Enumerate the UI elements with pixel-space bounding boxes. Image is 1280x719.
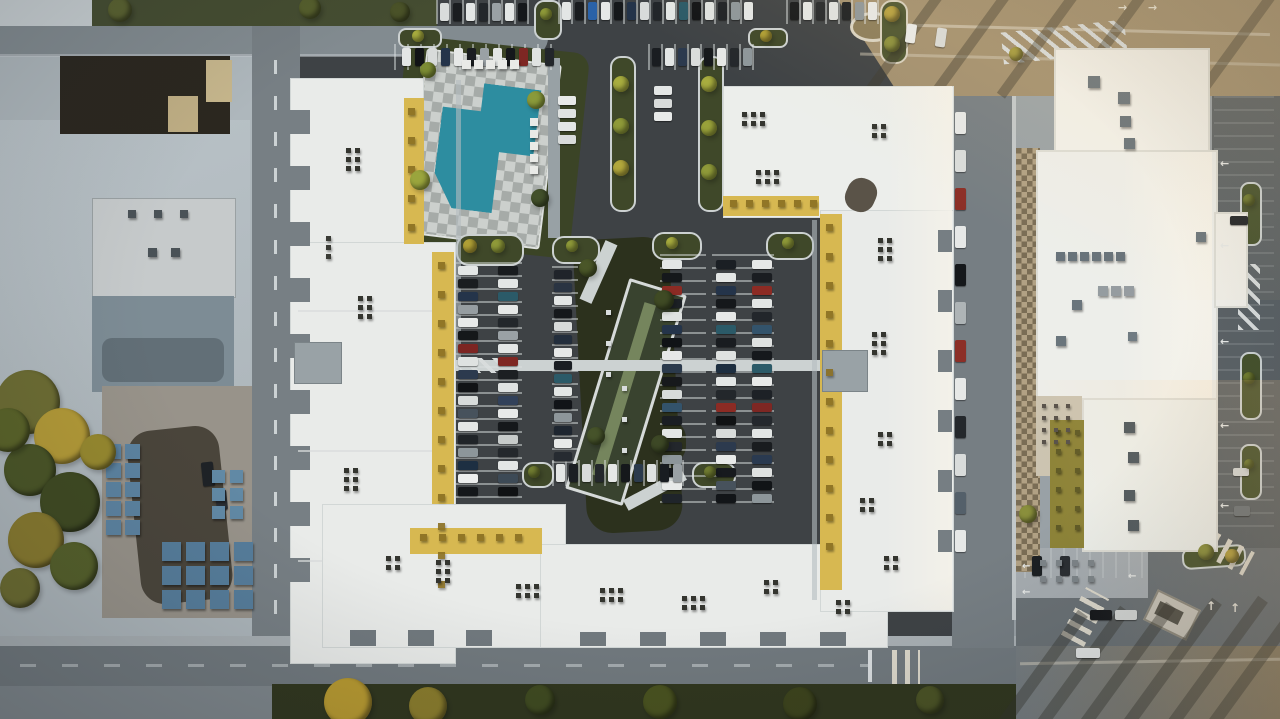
roof-vents-south-1	[436, 578, 441, 583]
parked-car	[1032, 556, 1042, 576]
blue-tarps-2	[234, 542, 253, 561]
balcony-windows-east	[826, 398, 833, 405]
second-row-l-car	[678, 48, 687, 66]
gray-building-upper-roof	[92, 198, 236, 298]
hvac-main-unit-long	[1124, 286, 1134, 296]
balcony-windows-east	[826, 253, 833, 260]
courtyard-col-f-car	[752, 416, 772, 425]
roof-vents-south-3	[600, 597, 605, 602]
blue-tarps-1	[125, 501, 140, 516]
roof-vents-south-1	[436, 569, 441, 574]
courtyard-col-a-car	[458, 435, 478, 444]
roof-vents-south-3	[600, 588, 605, 593]
tree	[390, 2, 410, 22]
bottom-row-m-car	[595, 464, 604, 482]
east-street-parallel-car	[955, 150, 966, 172]
hvac-main-c	[1196, 232, 1206, 242]
tree	[463, 239, 477, 253]
tree	[491, 239, 505, 253]
roof-vents-west-2	[367, 314, 372, 319]
tree	[1019, 505, 1037, 523]
courtyard-col-b-car	[498, 487, 518, 496]
courtyard-col-a-car	[458, 448, 478, 457]
bottom-row-m-car	[569, 464, 578, 482]
balcony-windows-west-main	[438, 494, 445, 501]
second-row-l-car	[652, 48, 661, 66]
roof-vents-west-2	[367, 296, 372, 301]
gravel-court-clutter	[1054, 416, 1058, 420]
tree	[409, 687, 447, 719]
top-row-i-car	[627, 2, 636, 20]
east-street-parallel-car	[955, 264, 966, 286]
top-row-i-car	[731, 2, 740, 20]
bottom-row-m-car	[582, 464, 591, 482]
blue-tarps-1	[125, 482, 140, 497]
roof-vents-east-6	[884, 556, 889, 561]
roof-vents-east-2	[878, 256, 883, 261]
east-street-parallel-car	[955, 530, 966, 552]
courtyard-col-c-car	[554, 335, 572, 344]
bottom-row-m-car	[660, 464, 669, 482]
balcony-windows-west-main	[438, 465, 445, 472]
olive-roof-vents	[1056, 468, 1061, 473]
bottom-row-m-car	[621, 464, 630, 482]
tree	[613, 160, 629, 176]
hvac-se-3	[1124, 490, 1135, 501]
roof-vents-south-4	[691, 596, 696, 601]
courtyard-col-d-car	[662, 377, 682, 386]
roof-vents-east-1	[881, 133, 886, 138]
hvac-main-d	[1128, 332, 1137, 341]
roof-vents-west-4	[395, 556, 400, 561]
south-wing-tooth-3	[466, 630, 492, 646]
second-row-k-car	[441, 48, 450, 66]
courtyard-col-b-car	[498, 409, 518, 418]
roof-vents-south-4	[691, 605, 696, 610]
lawn-skylights-2	[622, 448, 627, 453]
courtyard-col-f-car	[752, 481, 772, 490]
tree	[80, 434, 116, 470]
courtyard-col-a-car	[458, 357, 478, 366]
east-wing-tooth-2	[938, 290, 952, 312]
roof-vents-south-2	[516, 593, 521, 598]
courtyard-col-b-car	[498, 370, 518, 379]
roof-vents-west-1	[346, 157, 351, 162]
road-arrow: ←	[1220, 158, 1229, 169]
gray-roof-vents-1	[180, 210, 188, 218]
balcony-windows-east	[826, 514, 833, 521]
gray-roof-vents-1	[128, 210, 136, 218]
roof-vents-ne-2	[774, 179, 779, 184]
pool-loungers-north	[474, 60, 483, 69]
courtyard-col-d-car	[662, 338, 682, 347]
top-row-i-car	[653, 2, 662, 20]
roof-vents-ne-2	[774, 170, 779, 175]
industrial-tan-wall-2	[168, 96, 198, 132]
parked-car	[1090, 610, 1112, 620]
courtyard-col-c-car	[554, 296, 572, 305]
east-wing-tooth-1	[938, 230, 952, 252]
west-wing-tooth-1	[290, 110, 310, 134]
balcony-windows-west-main	[438, 436, 445, 443]
top-row-i-car	[575, 2, 584, 20]
hvac-top-1	[1088, 76, 1100, 88]
pool-loungers-east	[530, 154, 538, 162]
balcony-windows-west-main	[438, 407, 445, 414]
top-row-h-car	[518, 3, 527, 21]
road-arrow: ↑	[1230, 602, 1240, 614]
plaza-clutter	[1072, 576, 1078, 582]
courtyard-col-e-car	[716, 429, 736, 438]
courtyard-col-d-car	[662, 481, 682, 490]
roof-vents-east-5	[869, 507, 874, 512]
roof-vents-west-1	[346, 166, 351, 171]
roof-vents-west-2	[358, 305, 363, 310]
second-row-l-car	[743, 48, 752, 66]
tree	[613, 118, 629, 134]
courtyard-col-c-car	[554, 322, 572, 331]
top-row-h-car	[453, 3, 462, 21]
pool-east-col-car	[558, 109, 576, 118]
top-row-h-car	[479, 3, 488, 21]
balcony-windows-west-north	[408, 137, 415, 144]
tree	[1009, 47, 1023, 61]
tree	[528, 466, 540, 478]
courtyard-col-d-car	[662, 325, 682, 334]
roof-vents-east-6	[893, 556, 898, 561]
courtyard-col-a-car	[458, 383, 478, 392]
top-row-i-car	[640, 2, 649, 20]
lawn-skylights-1	[606, 372, 611, 377]
pool-side-walkway	[548, 58, 560, 238]
tree	[701, 164, 717, 180]
roof-vents-east-4	[887, 432, 892, 437]
courtyard-col-c-car	[554, 374, 572, 383]
tree	[701, 120, 717, 136]
roof-vents-west-5	[326, 245, 331, 250]
tree	[916, 686, 944, 714]
gravel-court-clutter	[1042, 416, 1046, 420]
courtyard-col-b-car	[498, 331, 518, 340]
hvac-main-unit-long	[1111, 286, 1121, 296]
courtyard-col-c-car	[554, 309, 572, 318]
roof-vents-east-4	[878, 432, 883, 437]
top-row-h-car	[440, 3, 449, 21]
bottom-row-m-car	[647, 464, 656, 482]
hvac-main-row	[1068, 252, 1077, 261]
roof-vents-south-5	[773, 580, 778, 585]
courtyard-col-a-car	[458, 487, 478, 496]
courtyard-col-e-car	[716, 299, 736, 308]
top-row-i-car	[588, 2, 597, 20]
road-arrow: →	[1148, 2, 1157, 13]
top-row-i-car	[705, 2, 714, 20]
courtyard-col-b-car	[498, 422, 518, 431]
courtyard-col-e-car	[716, 390, 736, 399]
balcony-windows-east	[826, 427, 833, 434]
blue-tarps-2	[162, 566, 181, 585]
balcony-windows-west-main	[438, 320, 445, 327]
courtyard-col-f-car	[752, 403, 772, 412]
hvac-main-b	[1056, 336, 1066, 346]
roof-vents-east-3	[881, 350, 886, 355]
west-wing-ridge-2	[298, 450, 450, 452]
courtyard-col-c-car	[554, 348, 572, 357]
hvac-main-row	[1092, 252, 1101, 261]
south-wing-tooth-8	[820, 632, 846, 646]
courtyard-col-e-car	[716, 312, 736, 321]
blue-tarps-2	[186, 590, 205, 609]
pool-loungers-east	[530, 130, 538, 138]
courtyard-col-e-car	[716, 481, 736, 490]
courtyard-col-e-car	[716, 494, 736, 503]
roof-vents-east-2	[887, 238, 892, 243]
east-street-parallel-car	[955, 340, 966, 362]
roof-vents-south-2	[516, 584, 521, 589]
top-row-h-car	[505, 3, 514, 21]
courtyard-col-c-car	[554, 452, 572, 461]
bottom-row-m-car	[673, 464, 682, 482]
gravel-court-clutter	[1066, 428, 1070, 432]
blue-tarps-2	[162, 542, 181, 561]
courtyard-col-d-car	[662, 455, 682, 464]
courtyard-col-e-car	[716, 377, 736, 386]
east-wing-tooth-6	[938, 530, 952, 552]
roof-vents-west-5	[326, 236, 331, 241]
east-street-parallel-car	[955, 302, 966, 324]
roof-vents-east-4	[887, 441, 892, 446]
tree	[651, 435, 669, 453]
roof-vents-east-3	[872, 332, 877, 337]
second-row-k-car	[402, 48, 411, 66]
roof-vents-ne-1	[742, 121, 747, 126]
roof-vents-south-3	[618, 597, 623, 602]
roof-vents-west-1	[346, 148, 351, 153]
balcony-windows-west-north	[408, 108, 415, 115]
pool-loungers-north	[510, 60, 519, 69]
road-arrow: ←	[1220, 500, 1229, 511]
courtyard-col-b-car	[498, 474, 518, 483]
tree	[410, 170, 430, 190]
roof-vents-west-3	[344, 477, 349, 482]
tree	[654, 290, 674, 310]
roof-vents-west-3	[344, 468, 349, 473]
roof-vents-west-3	[353, 468, 358, 473]
olive-roof-vents	[1056, 487, 1061, 492]
west-wing-tooth-6	[290, 390, 310, 414]
roof-vents-south-2	[525, 593, 530, 598]
olive-roof-vents	[1075, 525, 1080, 530]
gray-roof-vents-2	[148, 248, 157, 257]
courtyard-col-a-car	[458, 396, 478, 405]
parked-car	[1115, 610, 1137, 620]
second-row-l-car	[691, 48, 700, 66]
pool-loungers-east	[530, 166, 538, 174]
roof-vents-south-1	[445, 578, 450, 583]
courtyard-col-e-car	[716, 455, 736, 464]
roof-vents-ne-1	[751, 112, 756, 117]
roof-vents-south-3	[618, 588, 623, 593]
road-arrow: ←	[1022, 588, 1030, 598]
roof-vents-east-5	[860, 498, 865, 503]
courtyard-col-b-car	[498, 292, 518, 301]
blue-tarps-3	[212, 488, 225, 501]
gravel-court-clutter	[1066, 404, 1070, 408]
courtyard-col-b-car	[498, 266, 518, 275]
courtyard-col-a-car	[458, 292, 478, 301]
courtyard-col-c-car	[554, 426, 572, 435]
hvac-main-row	[1116, 252, 1125, 261]
right-lane-island-2	[1240, 352, 1262, 420]
west-wing-tooth-2	[290, 166, 310, 190]
hvac-se-4	[1128, 520, 1139, 531]
courtyard-col-b-car	[498, 344, 518, 353]
pool-east-col-car	[558, 135, 576, 144]
bottom-row-m-car	[608, 464, 617, 482]
roof-vents-west-4	[386, 556, 391, 561]
courtyard-col-e-car	[716, 403, 736, 412]
tree	[1225, 549, 1239, 563]
olive-roof-vents	[1075, 487, 1080, 492]
balcony-windows-west-main	[438, 552, 445, 559]
courtyard-col-b-car	[498, 435, 518, 444]
blue-tarps-2	[234, 566, 253, 585]
roof-vents-east-6	[893, 565, 898, 570]
roof-vents-south-6	[836, 600, 841, 605]
tree	[782, 237, 794, 249]
plaza-clutter	[1056, 576, 1062, 582]
second-row-k-car	[532, 48, 541, 66]
tree	[527, 91, 545, 109]
left-street-dash-line	[274, 60, 277, 630]
plaza-clutter	[1056, 560, 1062, 566]
roof-vents-west-1	[355, 148, 360, 153]
east-street-parallel-car	[955, 112, 966, 134]
top-row-j-car	[803, 2, 812, 20]
courtyard-col-a-car	[458, 344, 478, 353]
courtyard-col-a-car	[458, 409, 478, 418]
blue-tarps-3	[230, 506, 243, 519]
roof-vents-west-2	[358, 296, 363, 301]
courtyard-col-f-car	[752, 260, 772, 269]
top-row-i-car	[679, 2, 688, 20]
south-street-crosswalk	[892, 650, 920, 684]
east-wing-tooth-5	[938, 470, 952, 492]
south-wing-tooth-4	[580, 632, 606, 646]
west-wing-ridge-1	[298, 310, 450, 312]
tree	[666, 237, 678, 249]
south-wing-tooth-5	[640, 632, 666, 646]
tree	[0, 568, 40, 608]
courtyard-col-c-car	[554, 400, 572, 409]
road-arrow: ←	[1220, 420, 1229, 431]
roof-vents-west-3	[344, 486, 349, 491]
courtyard-col-e-car	[716, 273, 736, 282]
courtyard-col-d-car	[662, 351, 682, 360]
blue-tarps-2	[210, 542, 229, 561]
roof-vents-west-1	[355, 166, 360, 171]
courtyard-col-f-car	[752, 364, 772, 373]
hvac-top-4	[1124, 138, 1135, 149]
balcony-windows-south	[439, 534, 446, 541]
roof-vents-east-2	[887, 247, 892, 252]
blue-tarps-2	[210, 566, 229, 585]
tree	[579, 259, 597, 277]
tree	[1243, 194, 1255, 206]
pool-loungers-north	[486, 60, 495, 69]
road-arrow: ←	[1128, 572, 1136, 582]
south-wing-tooth-6	[700, 632, 726, 646]
second-row-l-car	[730, 48, 739, 66]
top-row-j-car	[842, 2, 851, 20]
roof-vents-east-2	[878, 247, 883, 252]
courtyard-sidewalk-east	[812, 220, 817, 600]
courtyard-col-d-car	[662, 416, 682, 425]
balcony-windows-east	[826, 485, 833, 492]
roof-vents-ne-2	[756, 179, 761, 184]
courtyard-col-b-car	[498, 448, 518, 457]
blue-tarps-1	[125, 520, 140, 535]
top-row-h-car	[492, 3, 501, 21]
roof-vents-ne-1	[760, 112, 765, 117]
roof-vents-east-3	[881, 332, 886, 337]
gravel-court-clutter	[1042, 428, 1046, 432]
hvac-se-2	[1128, 452, 1139, 463]
roof-vents-west-2	[358, 314, 363, 319]
road-arrow: ←	[1022, 562, 1030, 572]
balcony-windows-west-main	[438, 291, 445, 298]
blue-tarps-3	[212, 506, 225, 519]
road-arrow: ←	[1220, 240, 1229, 251]
blue-tarps-2	[186, 542, 205, 561]
hvac-main-a	[1072, 300, 1082, 310]
roof-vents-east-4	[878, 441, 883, 446]
olive-roof-vents	[1075, 449, 1080, 454]
roof-vents-west-5	[326, 254, 331, 259]
hvac-main-unit-long	[1098, 286, 1108, 296]
tree	[412, 30, 424, 42]
roof-vents-east-3	[872, 350, 877, 355]
hvac-top-3	[1120, 116, 1131, 127]
courtyard-col-b-car	[498, 357, 518, 366]
roof-vents-east-1	[872, 133, 877, 138]
east-street-parallel-car	[955, 188, 966, 210]
top-row-h-car	[466, 3, 475, 21]
balcony-windows-east	[826, 369, 833, 376]
tree	[540, 8, 552, 20]
olive-roof-vents	[1056, 525, 1061, 530]
balcony-windows-west-main	[438, 378, 445, 385]
courtyard-col-c-car	[554, 283, 572, 292]
courtyard-col-f-car	[752, 312, 772, 321]
roof-vents-east-5	[860, 507, 865, 512]
roof-vents-ne-2	[765, 170, 770, 175]
balcony-windows-ne	[794, 200, 801, 207]
courtyard-col-b-car	[498, 305, 518, 314]
industrial-dark-roof	[60, 56, 230, 134]
top-row-j-car	[829, 2, 838, 20]
balcony-windows-east	[826, 311, 833, 318]
balcony-windows-ne	[746, 200, 753, 207]
roof-vents-west-1	[355, 157, 360, 162]
courtyard-col-d-car	[662, 403, 682, 412]
pool-east-col-car	[558, 96, 576, 105]
courtyard-col-b-car	[498, 383, 518, 392]
south-street-stop-line	[868, 650, 872, 682]
tree	[531, 189, 549, 207]
pool-loungers-north	[498, 60, 507, 69]
hvac-se-1	[1124, 422, 1135, 433]
